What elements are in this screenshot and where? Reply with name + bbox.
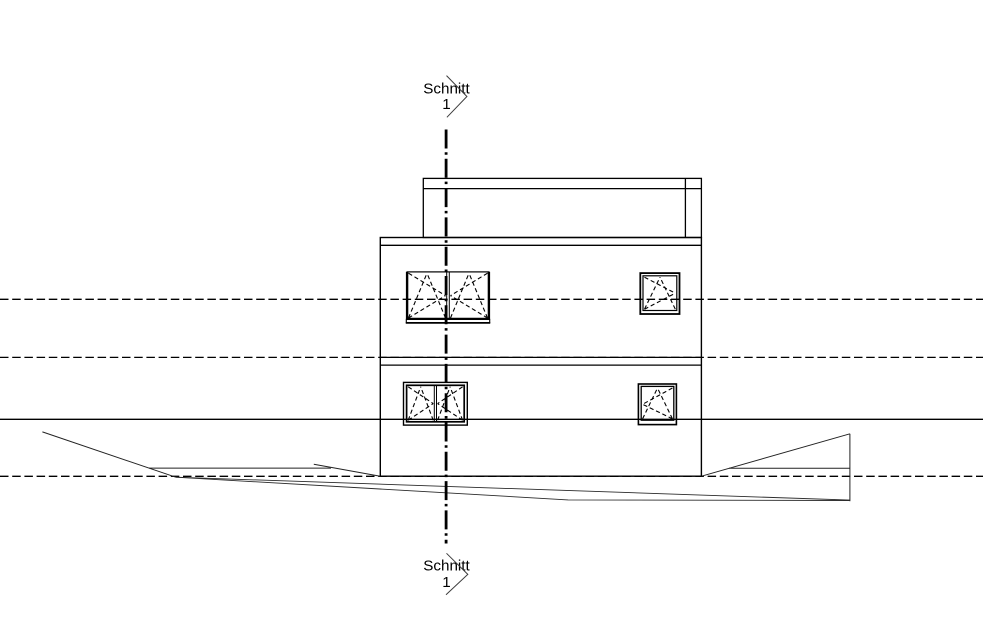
svg-text:Schnitt: Schnitt xyxy=(423,81,470,98)
svg-text:1: 1 xyxy=(442,96,450,113)
svg-text:1: 1 xyxy=(442,574,450,591)
svg-text:Schnitt: Schnitt xyxy=(423,558,470,575)
